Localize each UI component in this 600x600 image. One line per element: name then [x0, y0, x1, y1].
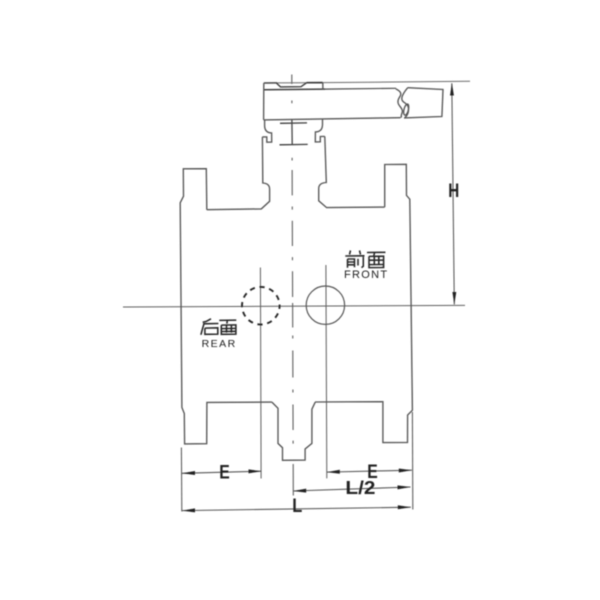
svg-text:L/2: L/2 — [345, 478, 375, 498]
svg-text:H: H — [448, 181, 459, 202]
svg-text:E: E — [219, 462, 230, 483]
svg-text:REAR: REAR — [202, 338, 237, 350]
svg-text:FRONT: FRONT — [344, 269, 388, 281]
svg-text:L: L — [292, 496, 302, 517]
